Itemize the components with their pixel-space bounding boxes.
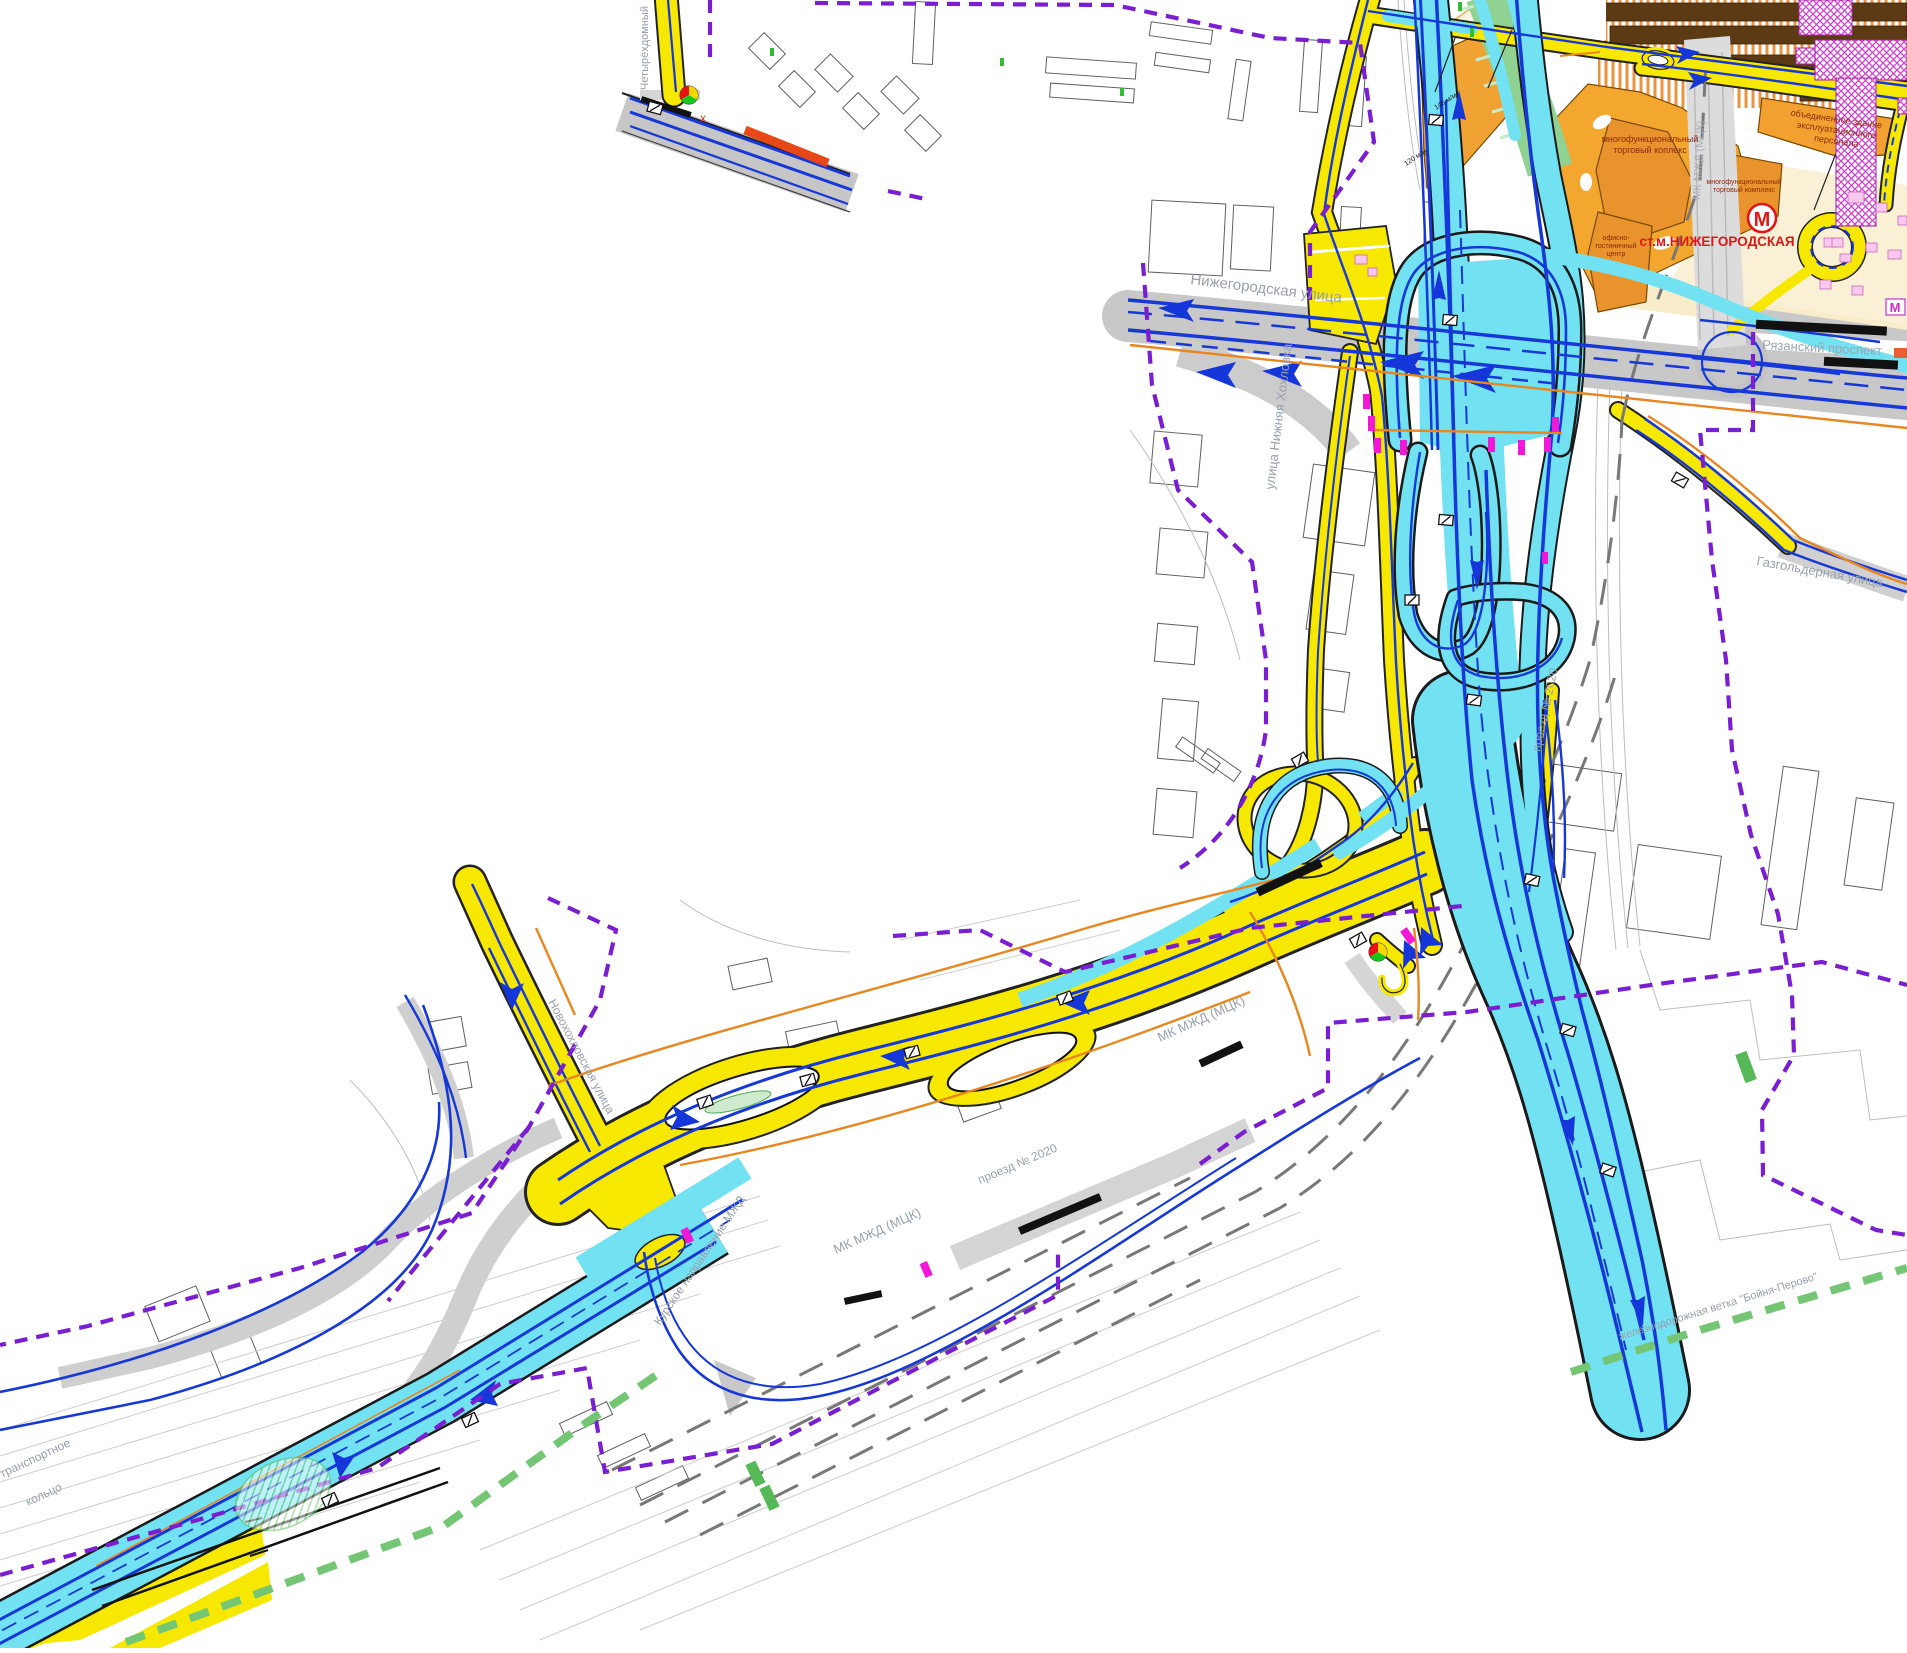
svg-text:М: М bbox=[1890, 300, 1901, 315]
svg-text:Четырёхдомный: Четырёхдомный bbox=[639, 6, 651, 90]
svg-text:офисно-: офисно- bbox=[1602, 235, 1630, 242]
svg-text:гостиничный: гостиничный bbox=[1595, 242, 1636, 250]
svg-text:М: М bbox=[1754, 209, 1771, 231]
svg-text:многофункциональный: многофункциональный bbox=[1706, 178, 1781, 186]
svg-text:торговый комплекс: торговый комплекс bbox=[1713, 186, 1776, 194]
svg-text:многофункциональный: многофункциональный bbox=[1602, 134, 1699, 144]
svg-text:ст.м.НИЖЕГОРОДСКАЯ: ст.м.НИЖЕГОРОДСКАЯ bbox=[1639, 234, 1794, 249]
svg-text:центр: центр bbox=[1607, 251, 1626, 258]
svg-text:x: x bbox=[700, 111, 706, 125]
svg-text:торговый коплекс: торговый коплекс bbox=[1613, 145, 1687, 155]
